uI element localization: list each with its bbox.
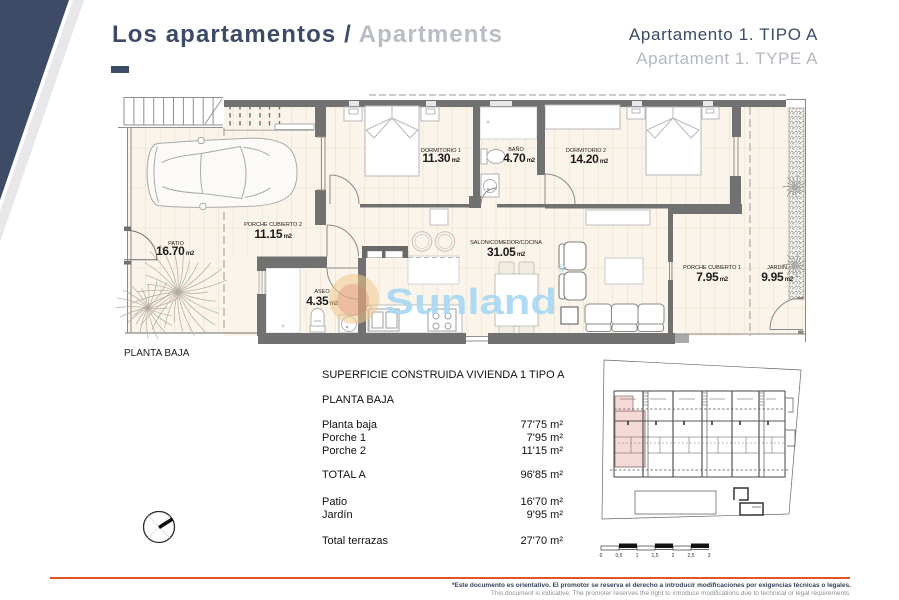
- svg-text:PLANTA BAJA: PLANTA BAJA: [124, 348, 190, 359]
- svg-text:0,5: 0,5: [616, 553, 623, 559]
- svg-text:3: 3: [708, 553, 711, 559]
- svg-text:Sunland: Sunland: [385, 281, 557, 322]
- svg-text:®: ®: [557, 263, 565, 275]
- svg-text:1,5: 1,5: [652, 553, 659, 559]
- svg-text:2,5: 2,5: [688, 553, 695, 559]
- svg-text:2: 2: [672, 553, 675, 559]
- svg-text:0: 0: [600, 553, 603, 559]
- svg-text:1: 1: [636, 553, 639, 559]
